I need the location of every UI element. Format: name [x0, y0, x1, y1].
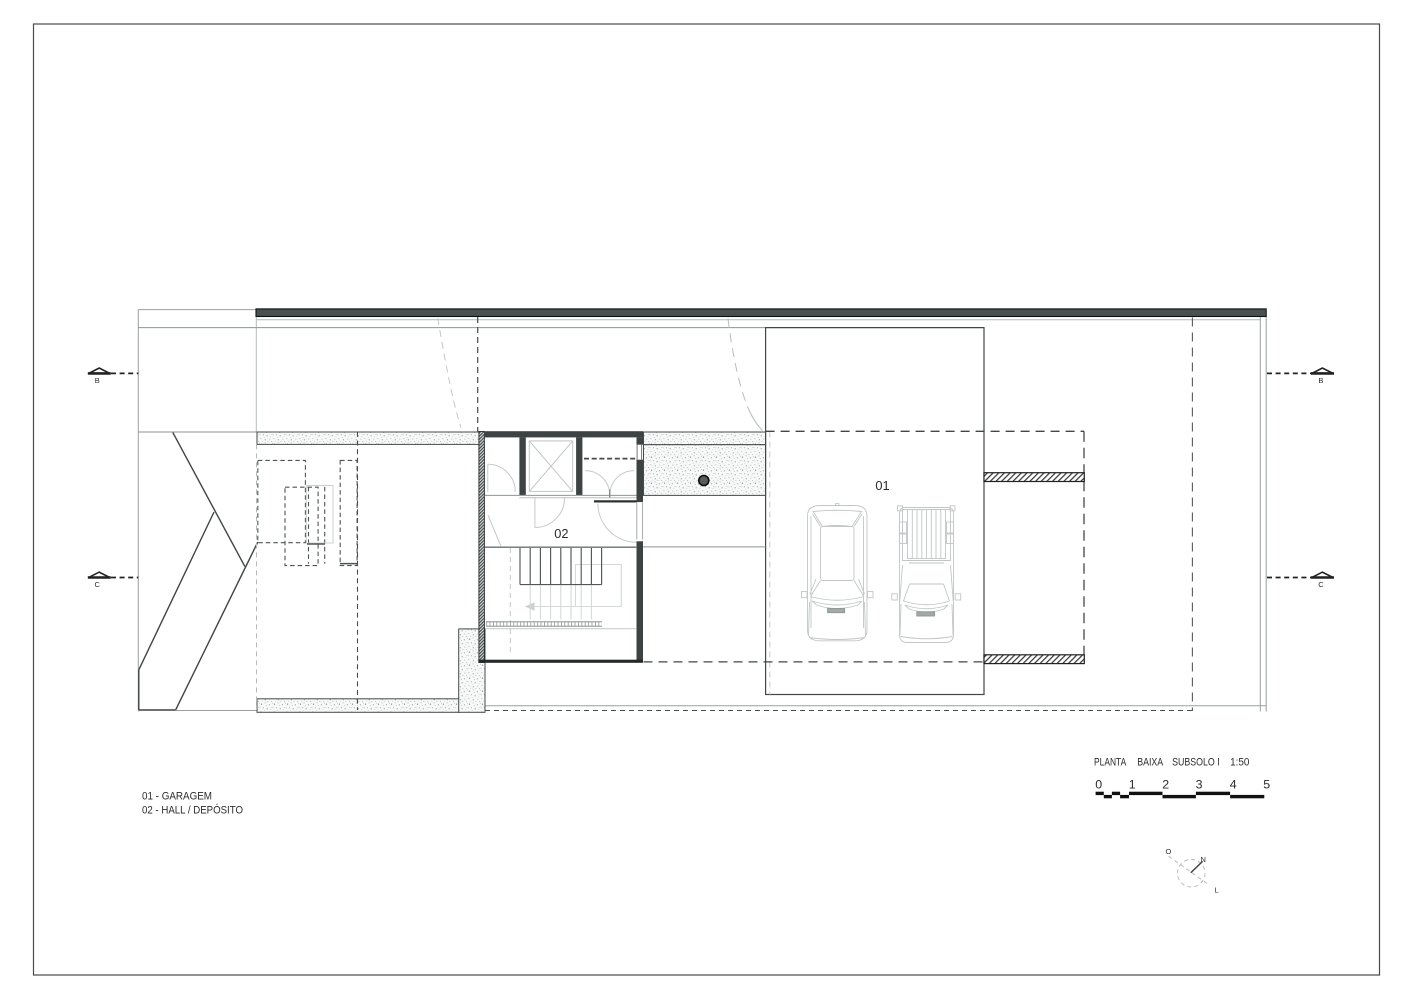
svg-text:C: C: [1318, 580, 1324, 589]
svg-text:C: C: [94, 580, 100, 589]
svg-text:0: 0: [1095, 778, 1102, 792]
svg-text:5: 5: [1263, 778, 1270, 792]
svg-text:SUBSOLO I: SUBSOLO I: [1172, 757, 1220, 769]
svg-text:PLANTA: PLANTA: [1094, 757, 1127, 769]
svg-text:L: L: [1215, 886, 1219, 895]
svg-text:2: 2: [1162, 778, 1169, 792]
svg-text:B: B: [1318, 376, 1323, 385]
svg-text:O: O: [1166, 847, 1172, 856]
svg-text:B: B: [95, 376, 100, 385]
svg-text:4: 4: [1230, 778, 1237, 792]
svg-text:01: 01: [875, 478, 889, 493]
svg-text:N: N: [1201, 855, 1206, 864]
svg-text:02 - HALL / DEPÓSITO: 02 - HALL / DEPÓSITO: [142, 804, 243, 817]
svg-text:3: 3: [1196, 778, 1203, 792]
svg-text:1:50: 1:50: [1230, 757, 1249, 769]
svg-text:1: 1: [1129, 778, 1136, 792]
svg-text:01 - GARAGEM: 01 - GARAGEM: [142, 791, 212, 803]
svg-text:02: 02: [554, 526, 568, 541]
svg-text:BAIXA: BAIXA: [1137, 757, 1163, 769]
